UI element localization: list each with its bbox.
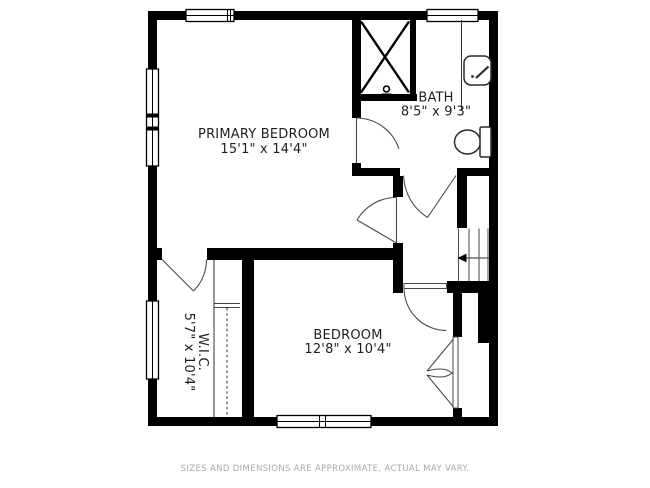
- window-top-bath: [427, 10, 478, 22]
- room-name: BEDROOM: [304, 329, 391, 343]
- window-top-primary: [186, 10, 234, 22]
- room-name: BATH: [401, 92, 471, 106]
- stair-treads: [459, 229, 489, 282]
- window-left-primary: [147, 69, 159, 166]
- toilet-tank: [480, 127, 491, 157]
- floor-plan-page: PRIMARY BEDROOM 15'1" x 14'4" BATH 8'5" …: [0, 0, 650, 488]
- room-label-primary-bedroom: PRIMARY BEDROOM 15'1" x 14'4": [198, 127, 330, 157]
- room-label-wic: W.I.C. 5'7" x 10'4": [181, 282, 209, 422]
- room-dimensions: 15'1" x 14'4": [198, 142, 330, 157]
- primary-bedroom-door: [357, 197, 397, 243]
- toilet: [455, 127, 492, 157]
- room-label-bedroom: BEDROOM 12'8" x 10'4": [304, 329, 391, 357]
- window-left-wic: [147, 301, 159, 379]
- staircase: [458, 229, 490, 282]
- bath-ensuite-door: [357, 118, 400, 163]
- shower-head-icon: [379, 86, 395, 98]
- stair-direction-arrow: [458, 254, 490, 263]
- room-name: PRIMARY BEDROOM: [198, 127, 330, 142]
- room-label-bath: BATH 8'5" x 9'3": [401, 92, 471, 119]
- disclaimer-text: SIZES AND DIMENSIONS ARE APPROXIMATE, AC…: [181, 464, 470, 474]
- room-dimensions: 5'7" x 10'4": [182, 282, 196, 422]
- shower: [361, 22, 409, 99]
- bath-hall-door: [404, 176, 457, 218]
- floor-plan-drawing: [0, 0, 650, 488]
- closet-bifold-doors: [427, 337, 458, 408]
- bedroom-door: [404, 284, 447, 331]
- toilet-bowl: [455, 130, 481, 154]
- closet-rod-and-shelf: [214, 260, 240, 417]
- room-name: W.I.C.: [196, 282, 210, 422]
- window-bottom-bedroom: [277, 416, 371, 428]
- room-dimensions: 12'8" x 10'4": [304, 343, 391, 357]
- sink-basin: [464, 56, 491, 85]
- room-dimensions: 8'5" x 9'3": [401, 105, 471, 119]
